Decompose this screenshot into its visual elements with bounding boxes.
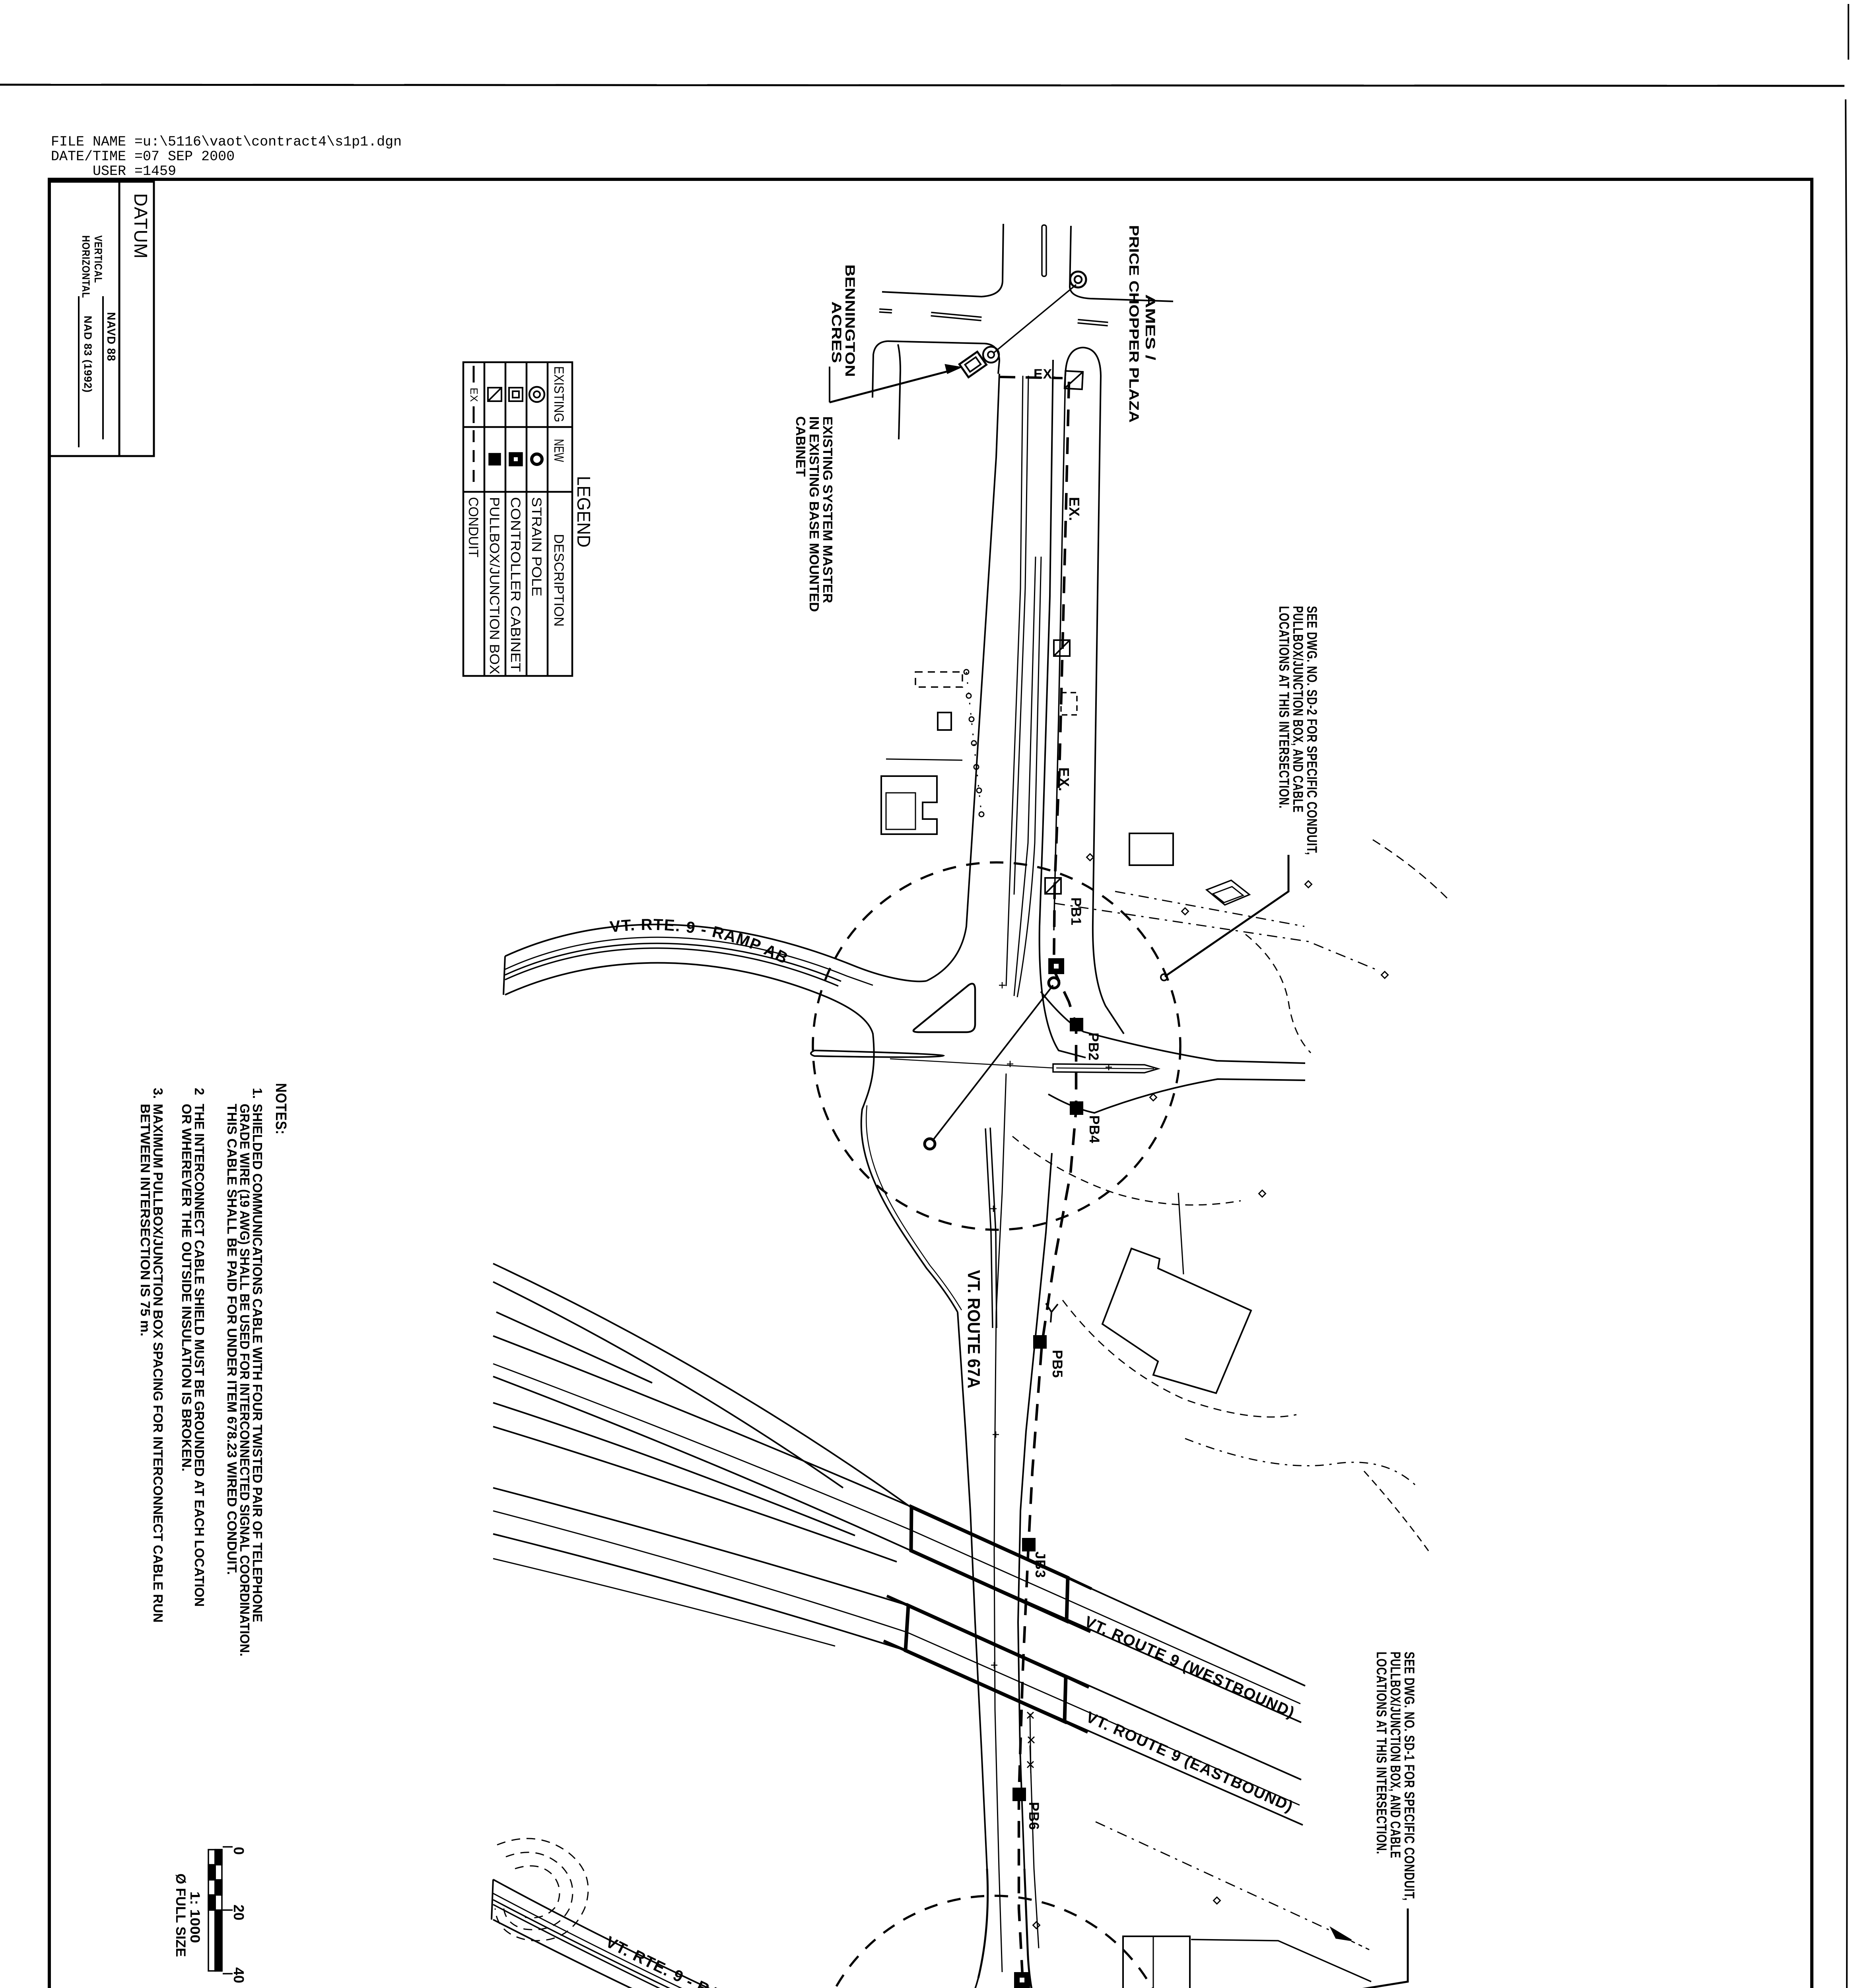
- svg-text:DATUM: DATUM: [130, 193, 151, 259]
- svg-text:OR WHEREVER THE OUTSIDE INSULA: OR WHEREVER THE OUTSIDE INSULATION IS BR…: [179, 1104, 194, 1472]
- svg-text:IN EXISTING BASE MOUNTED: IN EXISTING BASE MOUNTED: [807, 416, 822, 612]
- svg-text:EXISTING SYSTEM MASTER: EXISTING SYSTEM MASTER: [820, 416, 835, 603]
- svg-text:1: 1000: 1: 1000: [187, 1891, 202, 1943]
- svg-text:USER =1459: USER =1459: [51, 163, 176, 179]
- svg-text:20: 20: [231, 1905, 247, 1920]
- svg-text:BETWEEN INTERSECTION IS 75 m.: BETWEEN INTERSECTION IS 75 m.: [138, 1104, 153, 1336]
- svg-text:VT. ROUTE 67A: VT. ROUTE 67A: [964, 1270, 983, 1388]
- svg-text:NOTES:: NOTES:: [272, 1083, 289, 1135]
- svg-text:VT. RTE. 9 - RAMP CD: VT. RTE. 9 - RAMP CD: [603, 1933, 773, 1988]
- svg-text:THIS CABLE SHALL BE PAID FOR U: THIS CABLE SHALL BE PAID FOR UNDER ITEM …: [225, 1104, 239, 1575]
- svg-text:3.: 3.: [151, 1088, 165, 1099]
- svg-text:EXISTING: EXISTING: [551, 366, 566, 422]
- svg-text:PB4: PB4: [1086, 1115, 1102, 1143]
- svg-text:BENNINGTON: BENNINGTON: [842, 264, 857, 377]
- svg-text:NAVD 88: NAVD 88: [105, 312, 117, 361]
- svg-text:DESCRIPTION: DESCRIPTION: [551, 534, 566, 627]
- svg-text:CONDUIT: CONDUIT: [466, 497, 481, 557]
- svg-text:EX.: EX.: [1056, 767, 1072, 792]
- svg-text:PB5: PB5: [1049, 1350, 1065, 1378]
- svg-text:NAD 83 (1992): NAD 83 (1992): [82, 316, 94, 393]
- svg-text:VT. ROUTE 9 (EASTBOUND): VT. ROUTE 9 (EASTBOUND): [1083, 1708, 1296, 1816]
- svg-text:Ø FULL SIZE: Ø FULL SIZE: [173, 1873, 188, 1957]
- svg-text:PULLBOX/JUNCTION BOX: PULLBOX/JUNCTION BOX: [487, 497, 502, 674]
- svg-text:AMES /: AMES /: [1143, 294, 1158, 361]
- svg-text:VERTICAL: VERTICAL: [92, 235, 104, 283]
- svg-text:CONTROLLER CABINET: CONTROLLER CABINET: [508, 497, 523, 672]
- svg-text:2: 2: [192, 1088, 207, 1095]
- svg-text:EX.: EX.: [1034, 367, 1057, 382]
- svg-text:CABINET: CABINET: [793, 416, 808, 477]
- svg-text:FILE NAME =u:\5116\vaot\contra: FILE NAME =u:\5116\vaot\contract4\s1p1.d…: [51, 134, 402, 150]
- svg-text:PB6: PB6: [1026, 1802, 1042, 1830]
- svg-text:1.: 1.: [250, 1088, 265, 1099]
- svg-text:JB3: JB3: [1032, 1551, 1048, 1578]
- svg-text:PRICE CHOPPER PLAZA: PRICE CHOPPER PLAZA: [1126, 225, 1141, 423]
- svg-text:LOCATIONS AT THIS INTERSECTION: LOCATIONS AT THIS INTERSECTION.: [1276, 606, 1292, 809]
- svg-text:NEW: NEW: [551, 439, 566, 462]
- svg-text:40 m: 40 m: [231, 1967, 247, 1988]
- svg-text:PB1: PB1: [1068, 897, 1084, 926]
- svg-text:PULLBOX/JUNCTION BOX, AND CABL: PULLBOX/JUNCTION BOX, AND CABLE: [1290, 606, 1306, 813]
- svg-text:PULLBOX/JUNCTION BOX, AND CABL: PULLBOX/JUNCTION BOX, AND CABLE: [1387, 1652, 1403, 1858]
- svg-text:LOCATIONS AT THIS INTERSECTION: LOCATIONS AT THIS INTERSECTION.: [1374, 1652, 1389, 1854]
- svg-text:EX.: EX.: [1066, 497, 1082, 521]
- svg-text:DATE/TIME =07 SEP 2000: DATE/TIME =07 SEP 2000: [51, 149, 235, 165]
- svg-text:SEE DWG. NO. SD-1 FOR SPECIFIC: SEE DWG. NO. SD-1 FOR SPECIFIC CONDUIT,: [1401, 1652, 1417, 1901]
- svg-text:LEGEND: LEGEND: [573, 476, 594, 547]
- svg-text:HORIZONTAL: HORIZONTAL: [80, 235, 92, 298]
- svg-text:EX: EX: [468, 388, 480, 402]
- svg-text:STRAIN POLE: STRAIN POLE: [529, 497, 544, 596]
- svg-text:SEE DWG. NO. SD-2 FOR SPECIFIC: SEE DWG. NO. SD-2 FOR SPECIFIC CONDUIT,: [1304, 606, 1319, 855]
- svg-text:VT. RTE. 9 - RAMP AB: VT. RTE. 9 - RAMP AB: [609, 916, 791, 968]
- svg-text:0: 0: [231, 1847, 247, 1855]
- svg-text:PB2: PB2: [1086, 1033, 1101, 1061]
- svg-text:ACRES: ACRES: [829, 301, 844, 363]
